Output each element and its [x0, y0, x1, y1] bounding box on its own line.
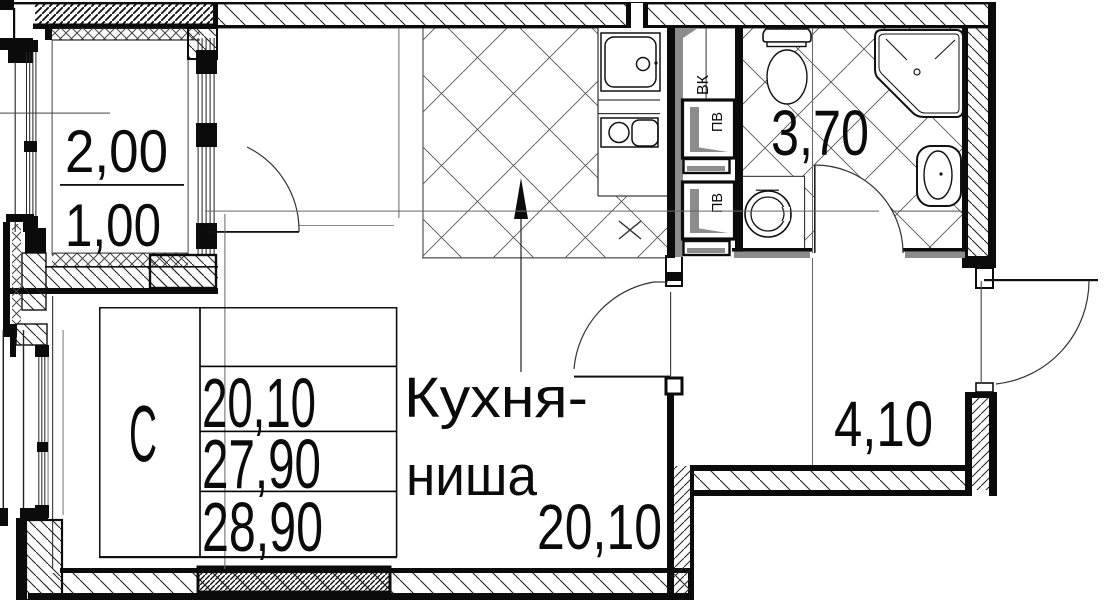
svg-text:С: С: [129, 389, 157, 478]
svg-text:4,10: 4,10: [834, 388, 933, 460]
svg-text:ПВ: ПВ: [709, 193, 726, 213]
svg-text:2,00: 2,00: [65, 118, 168, 185]
svg-text:1,00: 1,00: [65, 192, 161, 259]
svg-text:ПВ: ПВ: [709, 112, 726, 132]
svg-text:Кухня-: Кухня-: [404, 366, 588, 430]
svg-text:3,70: 3,70: [771, 97, 869, 169]
svg-text:ниша: ниша: [406, 444, 537, 508]
svg-text:20,10: 20,10: [537, 491, 662, 563]
svg-text:ВК: ВК: [695, 74, 712, 95]
svg-text:28,90: 28,90: [202, 488, 323, 566]
